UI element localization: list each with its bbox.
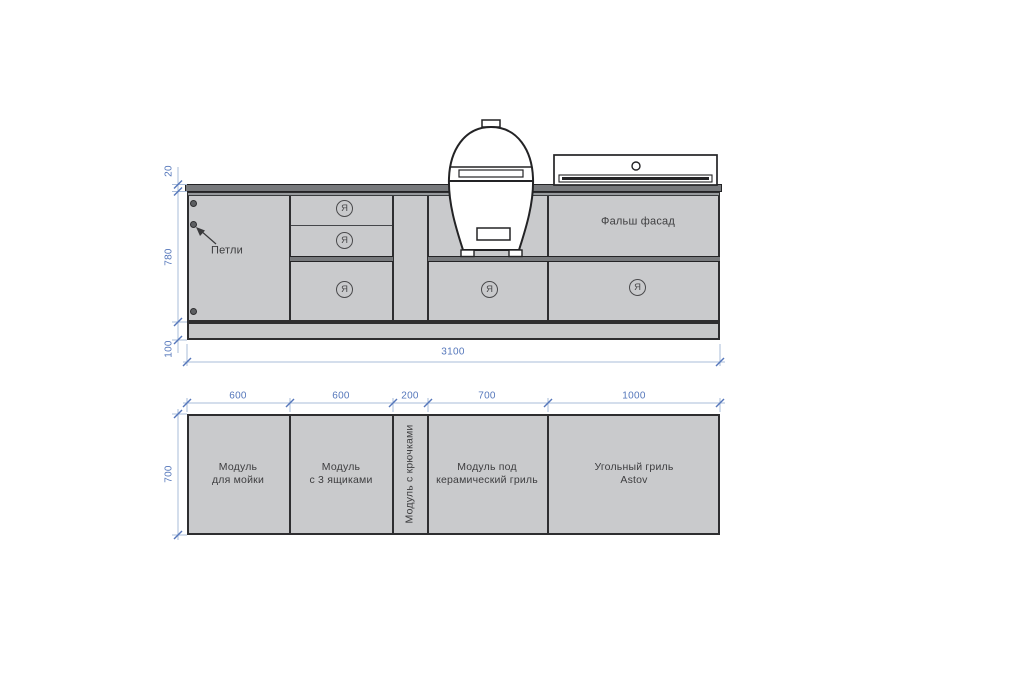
module-label-line: Модуль xyxy=(309,461,372,474)
drawer-mark: Я xyxy=(336,281,353,298)
dim-module-4-width: 700 xyxy=(478,391,496,402)
dim-countertop-thickness: 20 xyxy=(164,165,175,177)
plan-module-divider xyxy=(289,416,291,533)
drawer-mark-letter: Я xyxy=(486,284,493,295)
dim-module-5-width: 1000 xyxy=(622,391,645,402)
dim-plinth-height: 100 xyxy=(164,340,175,358)
plan-module-divider xyxy=(547,416,549,533)
hinges-label: Петли xyxy=(211,245,243,258)
module-label-line: Модуль xyxy=(212,461,264,474)
module-label-hooks: Модуль с крючками xyxy=(404,425,417,524)
drawer-mark-letter: Я xyxy=(341,284,348,295)
drawer-mark-letter: Я xyxy=(341,235,348,246)
drawer-mark: Я xyxy=(629,279,646,296)
hinge-dot xyxy=(190,200,197,207)
module-label-line: Угольный гриль xyxy=(594,461,673,474)
dim-module-1-width: 600 xyxy=(229,391,247,402)
module-label-drawers: Модуль с 3 ящиками xyxy=(309,461,372,487)
hinge-dot xyxy=(190,308,197,315)
grill-platform-band xyxy=(428,256,720,262)
hinge-dot xyxy=(190,221,197,228)
plan-module-divider xyxy=(392,416,394,533)
drawer-divider xyxy=(291,225,392,227)
drawer-mark-letter: Я xyxy=(634,282,641,293)
module-label-line: Модуль под xyxy=(436,461,538,474)
module-label-line: Astov xyxy=(594,474,673,487)
drawer-mark: Я xyxy=(336,232,353,249)
module-label-line: с 3 ящиками xyxy=(309,474,372,487)
module-label-astov: Угольный гриль Astov xyxy=(594,461,673,487)
dim-cabinet-height: 780 xyxy=(164,248,175,266)
module-label-line: для мойки xyxy=(212,474,264,487)
module-label-kamado: Модуль под керамический гриль xyxy=(436,461,538,487)
module-label-sink: Модуль для мойки xyxy=(212,461,264,487)
plan-module-divider xyxy=(427,416,429,533)
drawer-mark: Я xyxy=(481,281,498,298)
vector-overlay xyxy=(0,0,1024,683)
drawer-mark-letter: Я xyxy=(341,203,348,214)
dim-total-width: 3100 xyxy=(441,347,464,358)
countertop xyxy=(185,184,722,192)
cabinet-top-rail xyxy=(188,193,719,197)
dim-module-3-width: 200 xyxy=(401,391,419,402)
plinth xyxy=(187,322,720,340)
dim-module-2-width: 600 xyxy=(332,391,350,402)
false-front-label: Фальш фасад xyxy=(601,216,675,229)
dim-plan-depth: 700 xyxy=(164,465,175,483)
drawer-mark: Я xyxy=(336,200,353,217)
drawing-canvas: Я Я Я Я Я Петли Фальш фасад 20 780 100 3… xyxy=(0,0,1024,683)
mid-band xyxy=(290,256,393,262)
module-label-line: керамический гриль xyxy=(436,474,538,487)
astov-grill-icon xyxy=(554,155,717,185)
